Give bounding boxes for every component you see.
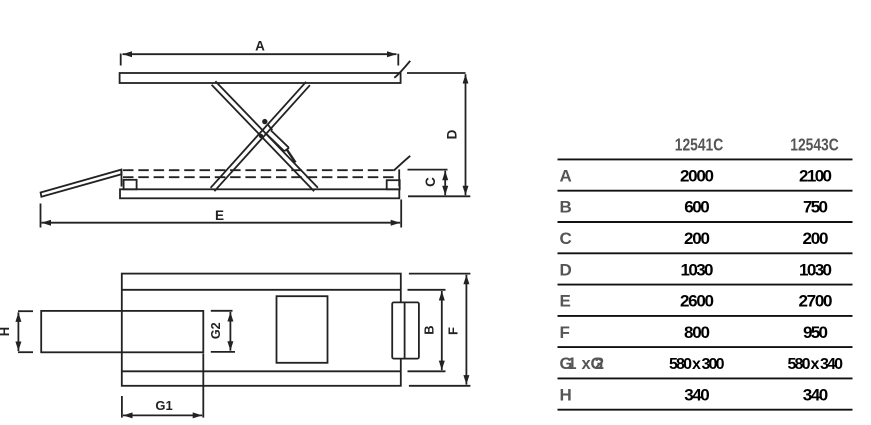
svg-text:F: F [560, 323, 570, 342]
svg-text:200: 200 [684, 229, 710, 248]
svg-text:E: E [215, 208, 224, 223]
svg-text:G2: G2 [591, 355, 605, 373]
svg-text:C: C [560, 229, 572, 248]
svg-text:12543C: 12543C [790, 135, 839, 155]
svg-text:2000: 2000 [680, 166, 714, 185]
svg-text:300: 300 [702, 356, 725, 373]
svg-text:D: D [560, 260, 572, 279]
svg-text:D: D [445, 129, 460, 139]
svg-text:2100: 2100 [799, 166, 832, 185]
svg-text:G1: G1 [560, 355, 577, 373]
svg-text:G1: G1 [155, 398, 172, 413]
svg-text:1030: 1030 [681, 260, 714, 279]
svg-text:C: C [423, 177, 438, 187]
svg-text:B: B [422, 325, 437, 334]
svg-text:B: B [560, 198, 572, 217]
svg-text:2700: 2700 [799, 292, 833, 311]
svg-text:H: H [560, 385, 572, 404]
svg-text:580: 580 [788, 356, 811, 373]
svg-text:A: A [255, 39, 265, 54]
svg-text:x: x [692, 356, 701, 373]
svg-text:1030: 1030 [799, 260, 832, 279]
svg-text:12541C: 12541C [675, 135, 724, 155]
svg-text:600: 600 [684, 198, 710, 217]
svg-text:2600: 2600 [680, 292, 714, 311]
svg-text:340: 340 [803, 385, 829, 404]
svg-text:340: 340 [820, 356, 843, 373]
svg-text:x: x [811, 356, 820, 373]
svg-text:580: 580 [669, 356, 692, 373]
svg-text:A: A [560, 166, 572, 185]
svg-text:800: 800 [684, 323, 710, 342]
svg-text:F: F [446, 327, 461, 335]
svg-text:200: 200 [803, 229, 829, 248]
svg-text:340: 340 [684, 385, 710, 404]
svg-text:G2: G2 [209, 322, 223, 339]
svg-text:950: 950 [803, 323, 828, 342]
svg-text:750: 750 [803, 198, 828, 217]
svg-text:E: E [560, 292, 571, 311]
svg-text:H: H [0, 327, 12, 336]
